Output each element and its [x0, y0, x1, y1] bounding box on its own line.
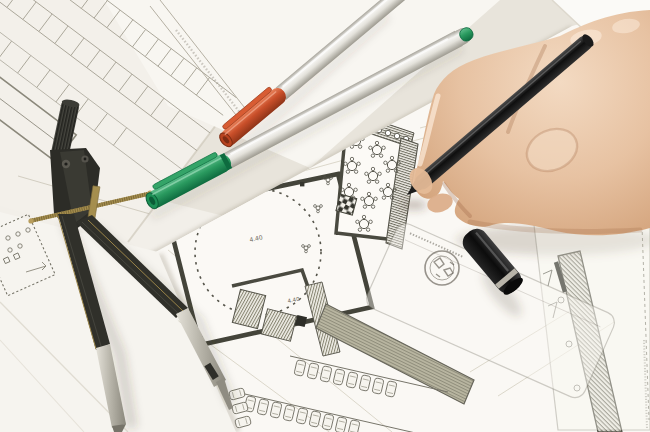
photo-canvas: 4.40: [0, 0, 650, 432]
checker-symbol: [336, 194, 357, 215]
photo-hand-drawing-on-blueprints: 4.40: [0, 0, 650, 432]
